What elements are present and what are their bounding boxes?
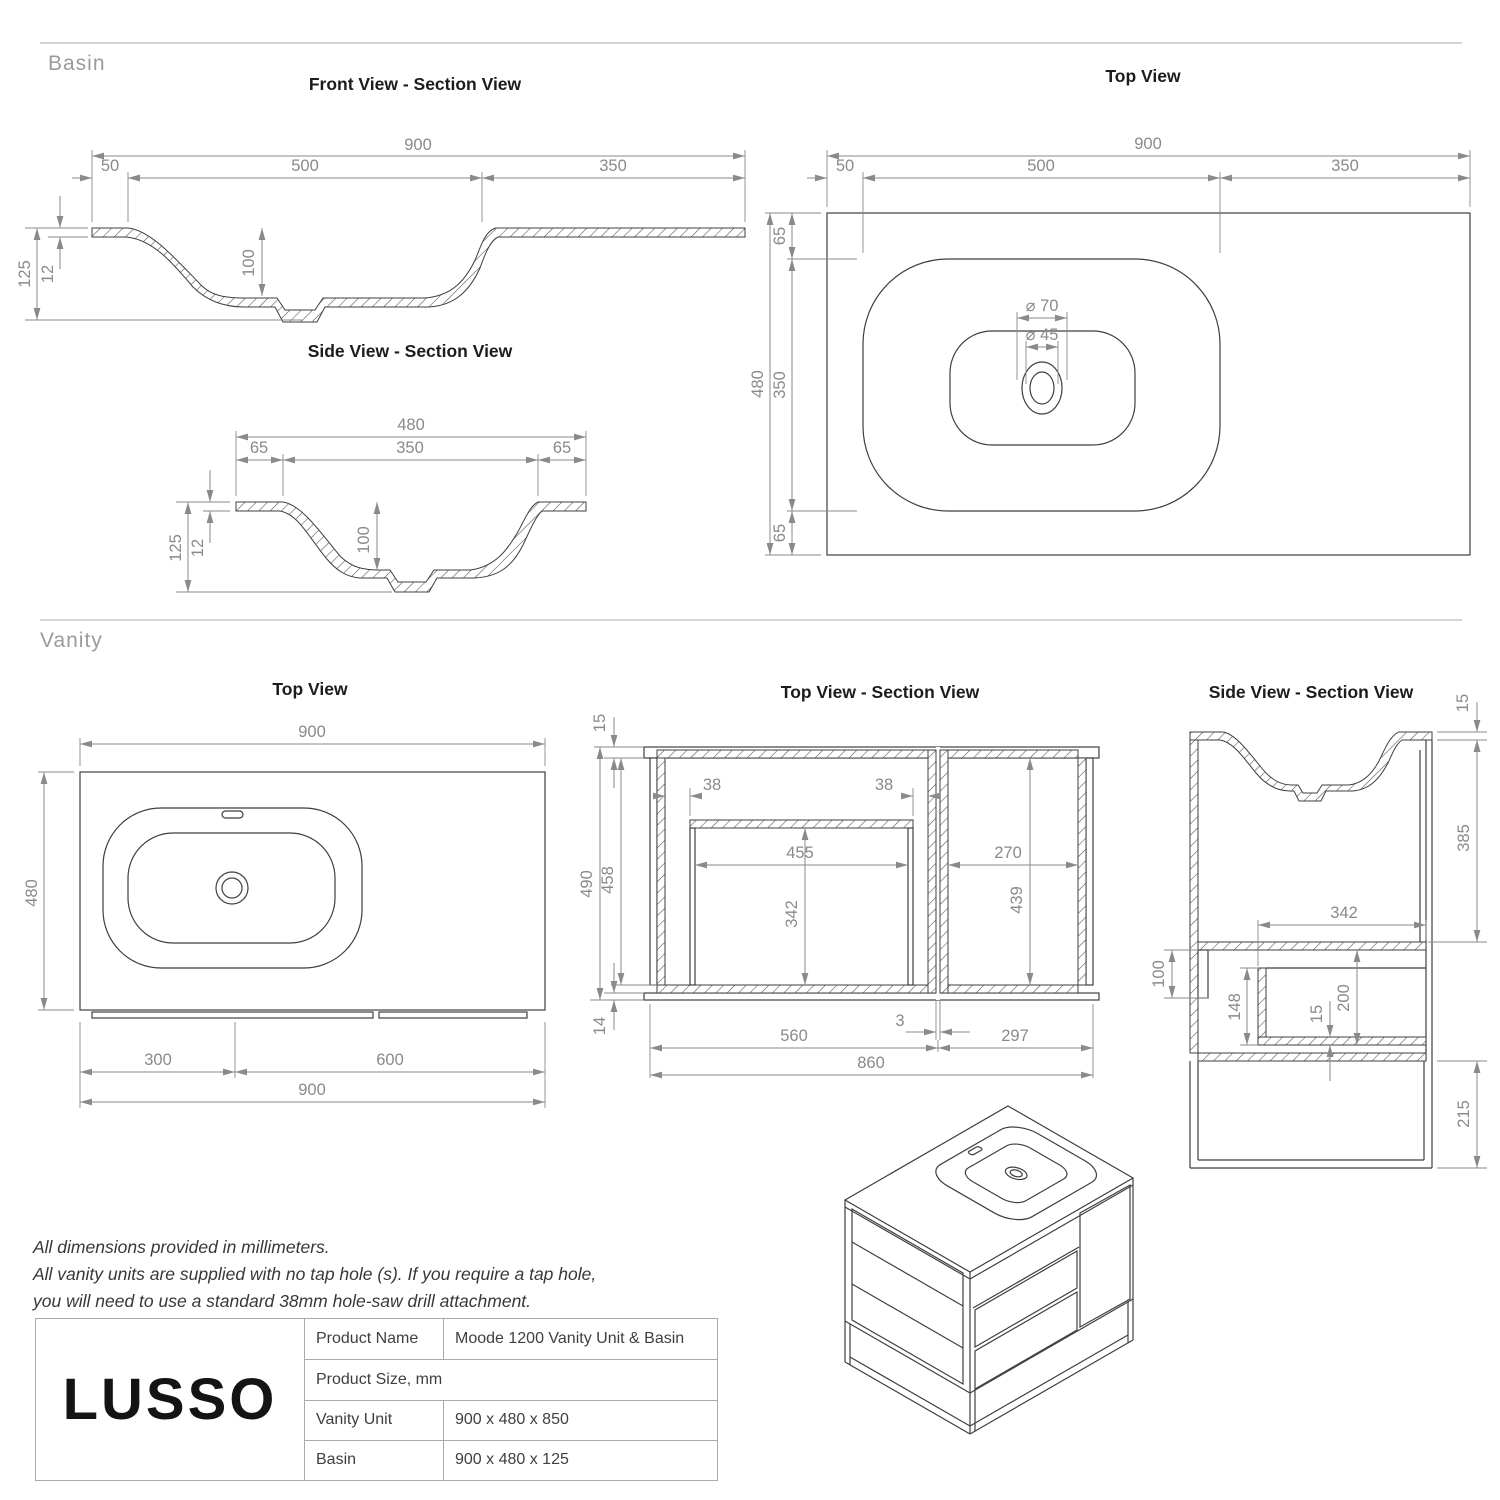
dim-vs-left-width: 560 xyxy=(780,1027,808,1045)
dim-vd-drawer-height: 148 xyxy=(1226,993,1244,1021)
dim-bt-waste-inner: ⌀ 45 xyxy=(1026,326,1059,344)
dim-vt-total-width: 900 xyxy=(298,1081,326,1099)
dim-bs-front-ledge: 65 xyxy=(250,439,268,457)
dim-vs-right-gap: 38 xyxy=(875,776,893,794)
dim-bs-overall-depth: 480 xyxy=(397,416,425,434)
dim-vt-right-split: 600 xyxy=(376,1051,404,1069)
dim-vt-left-split: 300 xyxy=(144,1051,172,1069)
vanity-side-view: 15 385 342 100 148 15 200 215 xyxy=(1150,694,1487,1168)
dim-vs-internal-depth: 458 xyxy=(599,866,617,894)
vanity-top-view: 900 480 300 600 900 xyxy=(23,723,545,1108)
dim-vs-drawer-depth: 342 xyxy=(783,900,801,928)
notes: All dimensions provided in millimeters. … xyxy=(33,1234,673,1315)
dim-bf-bowl-width: 500 xyxy=(291,157,319,175)
spec-label-vanity-unit: Vanity Unit xyxy=(304,1400,443,1440)
dim-vt-overall-depth: 480 xyxy=(23,879,41,907)
dim-vd-rail-height: 100 xyxy=(1150,960,1168,988)
dim-vt-overall-width: 900 xyxy=(298,723,326,741)
dim-bf-basin-height: 125 xyxy=(16,260,34,288)
dim-bs-top-thickness: 12 xyxy=(189,539,207,557)
dim-bt-overall-width: 900 xyxy=(1134,135,1162,153)
dim-vs-door-width: 270 xyxy=(994,844,1022,862)
dim-bt-bowl-width: 500 xyxy=(1027,157,1055,175)
technical-drawing-page: Basin Vanity Front View - Section View S… xyxy=(0,0,1500,1500)
logo-cell: LUSSO xyxy=(36,1319,304,1480)
dim-bt-bowl-depth: 350 xyxy=(771,371,789,399)
note-line-1: All dimensions provided in millimeters. xyxy=(33,1234,673,1261)
dim-bf-top-thickness: 12 xyxy=(39,265,57,283)
basin-top-view: 900 50 500 350 480 65 350 65 ⌀ 70 xyxy=(749,135,1470,555)
dim-bt-left-ledge: 50 xyxy=(836,157,854,175)
basin-front-view: 900 50 500 350 125 12 100 xyxy=(16,136,745,322)
dim-vd-panel-thickness: 15 xyxy=(1308,1005,1326,1023)
dim-vs-divider-gap: 3 xyxy=(895,1012,904,1030)
dim-bs-back-ledge: 65 xyxy=(553,439,571,457)
spec-value-basin: 900 x 480 x 125 xyxy=(443,1440,717,1480)
dim-bt-bottom-ledge: 65 xyxy=(771,524,789,542)
spec-label-basin: Basin xyxy=(304,1440,443,1480)
dim-vd-shelf-width: 342 xyxy=(1330,904,1358,922)
dim-vs-overall-depth: 490 xyxy=(578,870,596,898)
dim-vs-bottom-thickness: 14 xyxy=(591,1017,609,1035)
dim-vd-lower-depth: 200 xyxy=(1335,984,1353,1012)
spec-label-product-name: Product Name xyxy=(304,1319,443,1359)
dim-vs-left-gap: 38 xyxy=(703,776,721,794)
note-line-2: All vanity units are supplied with no ta… xyxy=(33,1261,673,1288)
basin-side-view: 480 65 350 65 125 12 100 xyxy=(167,416,586,592)
dim-vs-door-depth: 439 xyxy=(1008,886,1026,914)
dim-bs-basin-height: 125 xyxy=(167,534,185,562)
spec-label-product-size: Product Size, mm xyxy=(304,1359,717,1399)
dim-bt-top-ledge: 65 xyxy=(771,227,789,245)
iso-basin xyxy=(925,1121,1107,1226)
dim-bf-right-ledge: 350 xyxy=(599,157,627,175)
dim-vs-overall-width: 860 xyxy=(857,1054,885,1072)
dim-vd-top-thickness: 15 xyxy=(1454,694,1472,712)
spec-value-vanity-unit: 900 x 480 x 850 xyxy=(443,1400,717,1440)
dim-vs-top-thickness: 15 xyxy=(591,714,609,732)
note-line-3: you will need to use a standard 38mm hol… xyxy=(33,1288,673,1315)
vanity-isometric-view xyxy=(845,1106,1133,1434)
dim-bt-overall-depth: 480 xyxy=(749,370,767,398)
spec-value-product-name: Moode 1200 Vanity Unit & Basin xyxy=(443,1319,717,1359)
dim-bf-left-ledge: 50 xyxy=(101,157,119,175)
dim-bf-overall-width: 900 xyxy=(404,136,432,154)
brand-logo: LUSSO xyxy=(63,1366,278,1433)
dim-bt-right-ledge: 350 xyxy=(1331,157,1359,175)
dim-bs-bowl-depth: 350 xyxy=(396,439,424,457)
dim-bs-bowl-inner-depth: 100 xyxy=(355,526,373,554)
dim-bf-bowl-depth: 100 xyxy=(240,249,258,277)
spec-table: LUSSO Product Name Moode 1200 Vanity Uni… xyxy=(35,1318,718,1481)
dim-vs-drawer-width: 455 xyxy=(786,844,814,862)
dim-vs-right-width: 297 xyxy=(1001,1027,1029,1045)
vanity-section-view: 15 490 458 14 38 38 455 342 270 xyxy=(578,714,1099,1078)
dim-vd-frame-height: 215 xyxy=(1455,1100,1473,1128)
dim-vd-upper-depth: 385 xyxy=(1455,824,1473,852)
dim-bt-waste-outer: ⌀ 70 xyxy=(1026,297,1059,315)
